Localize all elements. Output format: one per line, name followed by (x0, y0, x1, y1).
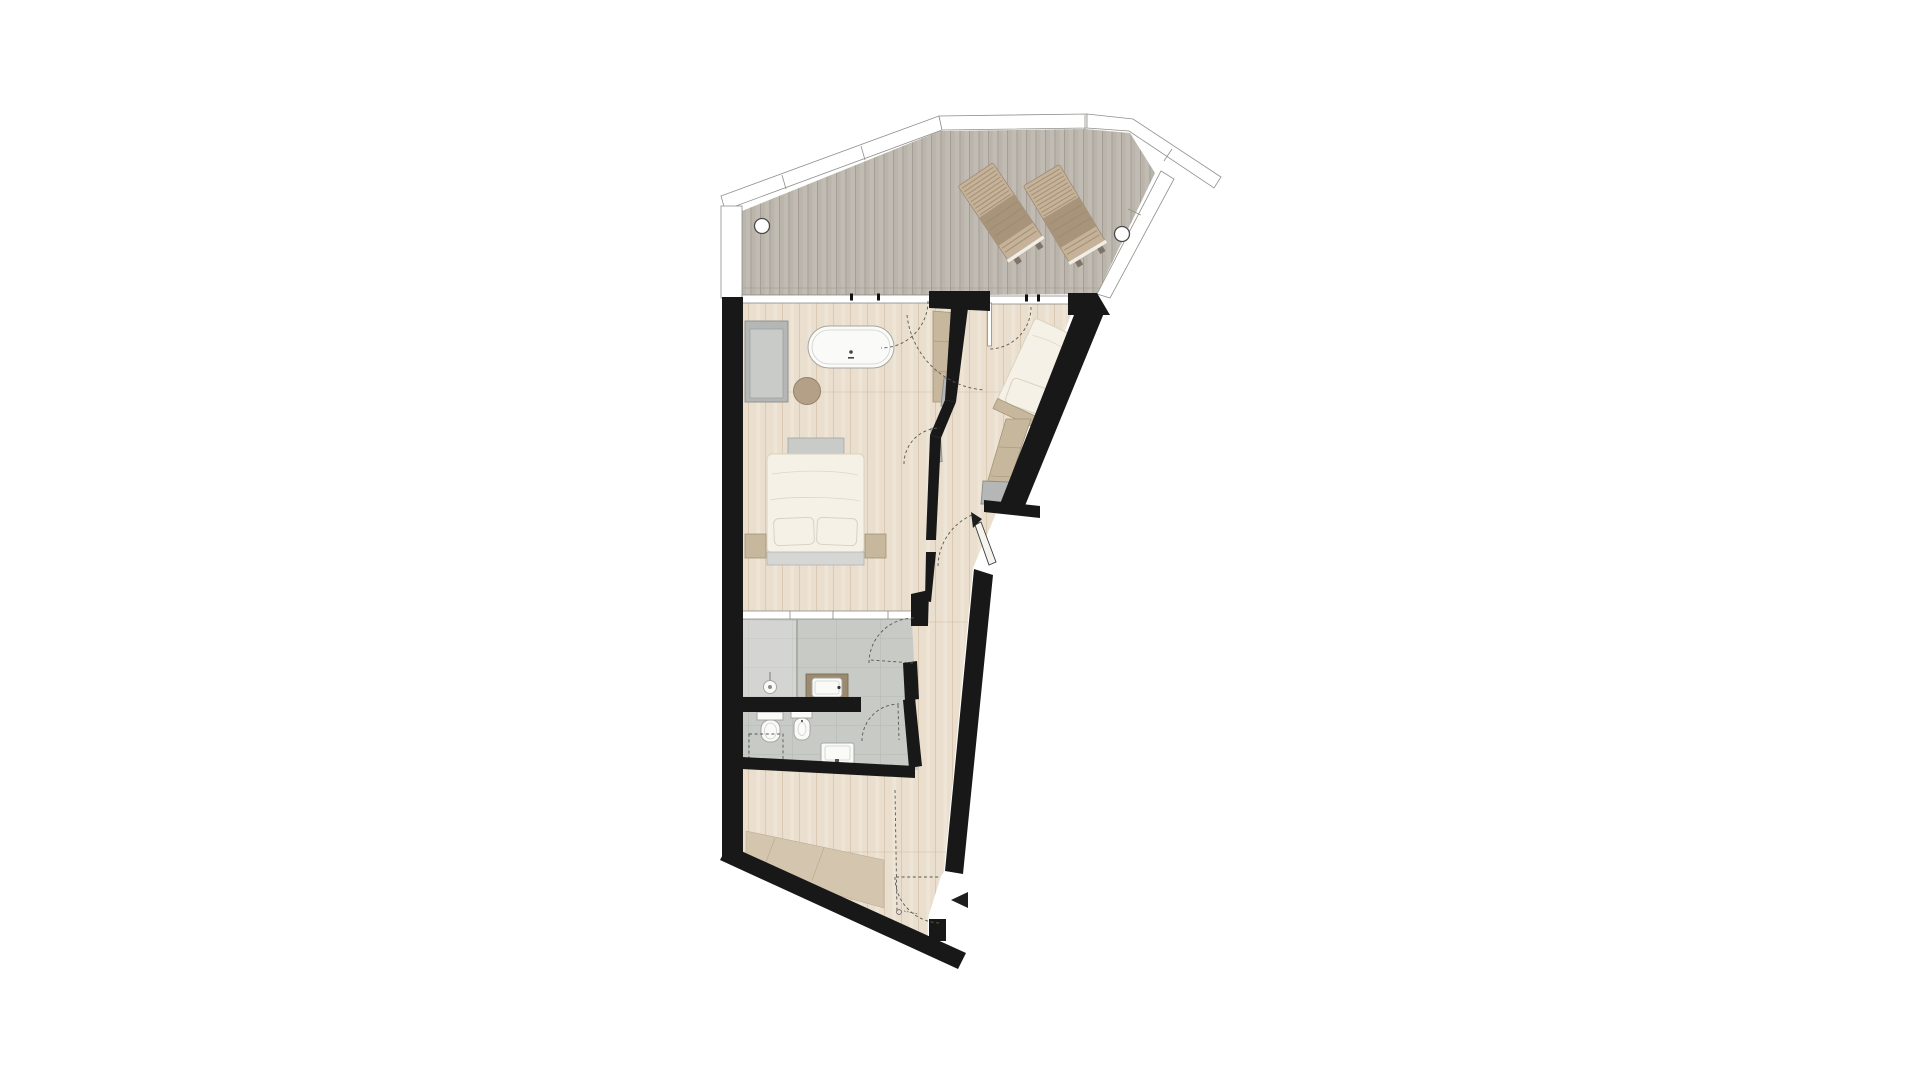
nightstand-right (865, 534, 886, 558)
terrace (721, 114, 1221, 298)
toilet-tank (757, 712, 783, 720)
headboard (767, 552, 864, 565)
pillow-left (773, 517, 814, 546)
pillow-right (816, 517, 857, 546)
shower-head-center (768, 685, 772, 689)
railing-post (1115, 227, 1130, 242)
window-mullion (877, 294, 880, 301)
bathtub-overflow (848, 357, 854, 359)
second-bedroom-window-band (988, 296, 1072, 304)
hall-wall-corner (911, 590, 929, 626)
railing-post (755, 219, 770, 234)
bathtub-drain (849, 350, 853, 354)
bathroom-door-stub (903, 661, 919, 701)
nightstand-left (745, 534, 766, 558)
bidet-faucet (801, 720, 803, 722)
exterior-wall-left (722, 297, 743, 861)
bathroom-glass-partition (742, 611, 912, 619)
railing-top (939, 114, 1087, 130)
bedroom-window-band (742, 295, 931, 303)
floor-plan-canvas (0, 0, 1920, 1080)
floor-plan-image (0, 0, 1920, 1080)
bathroom-partition-wall (742, 697, 861, 712)
window-mullion (1037, 295, 1040, 302)
side-stool (794, 378, 821, 405)
main-entry-arrow (951, 892, 968, 908)
window-mullion (850, 294, 853, 301)
railing-left (721, 206, 742, 298)
vanity-faucet (837, 686, 840, 689)
terrace-deck-floor (742, 129, 1155, 297)
window-mullion (1025, 295, 1028, 302)
bidet-tank (791, 711, 812, 718)
foot-bench (788, 438, 844, 455)
wardrobe-inner (750, 329, 783, 398)
